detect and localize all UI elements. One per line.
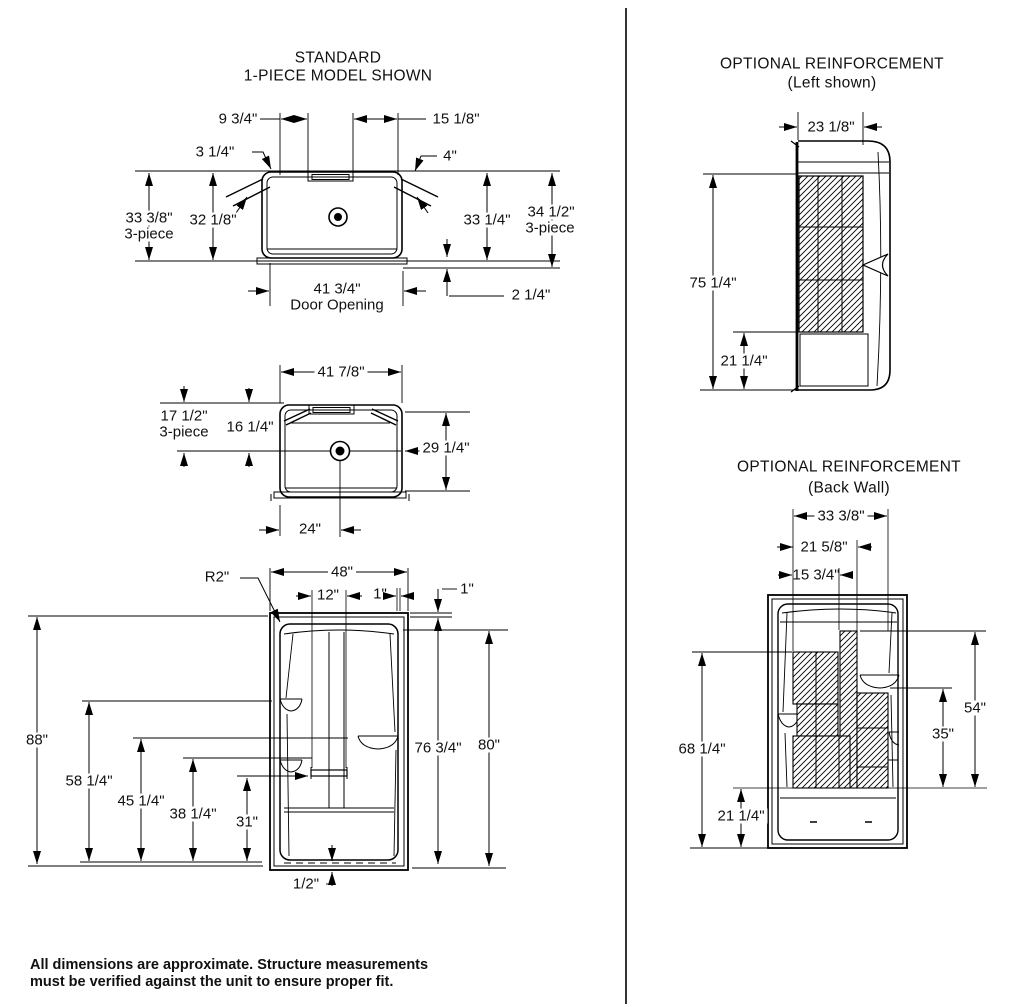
dim-1-a: 1" (373, 587, 387, 602)
dim-24: 24" (299, 522, 321, 537)
dim-33-3-8: 33 3/8" (122, 211, 175, 226)
spec-sheet-page: STANDARD 1-PIECE MODEL SHOWN 9 3/4" 15 1… (0, 0, 1024, 1007)
dim-58-1-4: 58 1/4" (62, 774, 115, 789)
dim-21-1-4-left: 21 1/4" (717, 354, 770, 369)
reinf-left-title-line1: OPTIONAL REINFORCEMENT (720, 56, 944, 72)
dim-23-1-8: 23 1/8" (807, 120, 854, 135)
dim-31: 31" (233, 815, 261, 830)
reinf-back-title-line1: OPTIONAL REINFORCEMENT (737, 459, 961, 475)
dim-2-1-4: 2 1/4" (512, 288, 551, 303)
dim-32-1-8: 32 1/8" (186, 213, 239, 228)
dim-12: 12" (317, 588, 339, 603)
reinf-back-title-line2: (Back Wall) (808, 480, 890, 496)
dim-16-1-4: 16 1/4" (226, 420, 273, 435)
dim-33-1-4: 33 1/4" (460, 213, 513, 228)
dim-41-3-4: 41 3/4" (313, 282, 360, 297)
dim-41-7-8: 41 7/8" (314, 365, 367, 380)
dim-35: 35" (929, 727, 957, 742)
dim-68-1-4: 68 1/4" (675, 742, 728, 757)
left-shelves (280, 699, 302, 772)
dim-1-b: 1" (460, 582, 474, 597)
front-elevation-view (28, 568, 508, 886)
dim-80: 80" (475, 738, 503, 753)
standard-plan-view (135, 113, 560, 306)
dim-15-1-8: 15 1/8" (432, 112, 479, 127)
reinforcement-hatch (799, 176, 863, 332)
door-handle (863, 254, 888, 276)
dim-75-1-4: 75 1/4" (686, 276, 739, 291)
dim-4: 4" (443, 149, 457, 164)
dim-r2: R2" (205, 570, 230, 585)
dim-34-1-2: 34 1/2" (524, 205, 577, 220)
reinforcement-hatch-blocks (793, 631, 888, 788)
standard-plan-title-line1: STANDARD (295, 50, 382, 66)
dim-45-1-4: 45 1/4" (114, 794, 167, 809)
dim-48: 48" (328, 565, 356, 580)
dim-38-1-4: 38 1/4" (166, 807, 219, 822)
dim-15-3-4: 15 3/4" (792, 568, 839, 583)
dim-21-5-8: 21 5/8" (800, 540, 847, 555)
door-opening-label: Door Opening (290, 298, 383, 313)
dim-17-1-2: 17 1/2" (160, 409, 207, 424)
reinforcement-left-view (700, 112, 890, 392)
footer-note-line2: must be verified against the unit to ens… (30, 974, 393, 990)
footer-note-line1: All dimensions are approximate. Structur… (30, 957, 428, 973)
dim-1-2: 1/2" (293, 877, 319, 892)
dim-9-3-4: 9 3/4" (219, 112, 258, 127)
reinf-left-title-line2: (Left shown) (788, 75, 877, 91)
dim-29-1-4: 29 1/4" (419, 441, 472, 456)
reinforcement-back-view (690, 509, 987, 848)
dim-3-1-4: 3 1/4" (196, 145, 235, 160)
dim-54: 54" (961, 701, 989, 716)
dim-88: 88" (23, 733, 51, 748)
dimension-drawing-linework (0, 0, 1024, 1007)
standard-plan-title-line2: 1-PIECE MODEL SHOWN (244, 68, 433, 84)
right-shelf (358, 736, 398, 749)
dim-33-3-8-sub: 3-piece (121, 227, 176, 242)
dim-17-1-2-sub: 3-piece (159, 425, 208, 440)
dim-76-3-4: 76 3/4" (411, 741, 464, 756)
dim-21-1-4-back: 21 1/4" (714, 809, 767, 824)
dim-34-1-2-sub: 3-piece (522, 221, 577, 236)
dim-33-3-8-back: 33 3/8" (814, 509, 867, 524)
